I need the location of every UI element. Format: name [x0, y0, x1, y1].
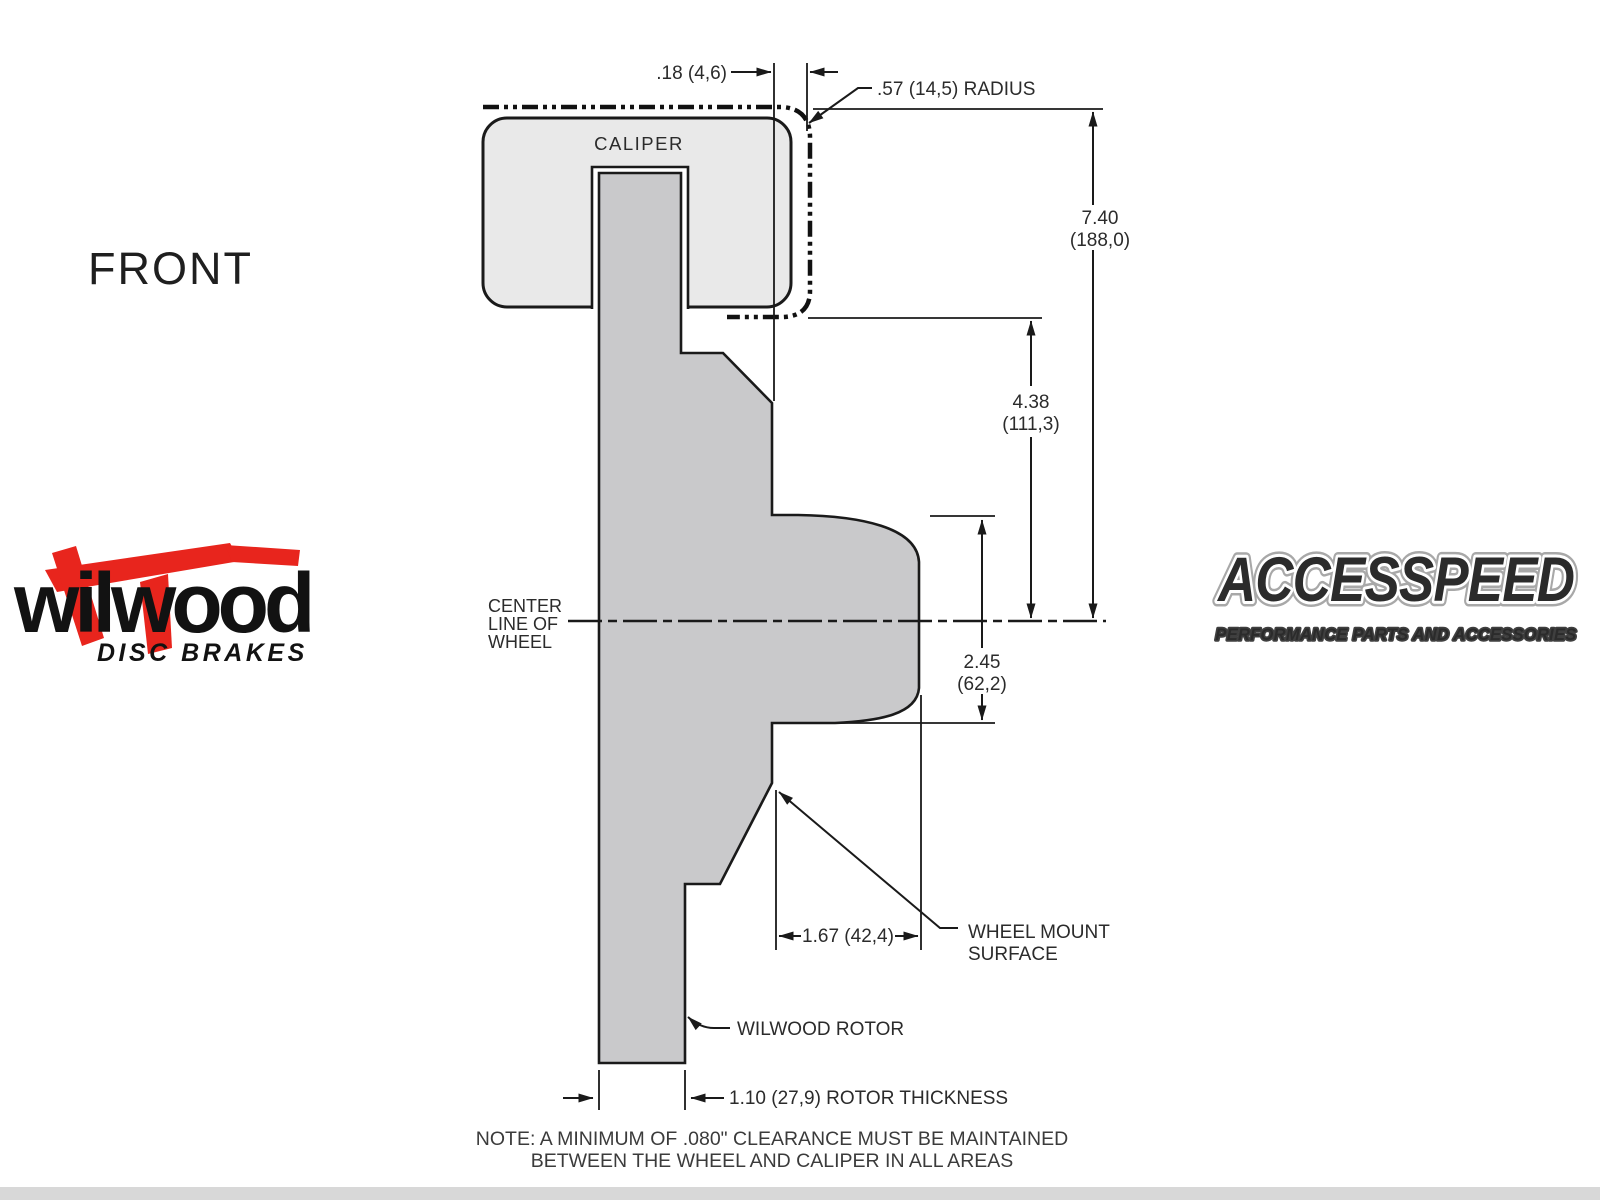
accesspeed-logo: ACCESSPEED ACCESSPEED ACCESSPEED PERFORM…: [1215, 545, 1576, 644]
wilwood-tagline: DISC BRAKES: [97, 639, 308, 667]
wilwood-logo: wilwood DISC BRAKES: [13, 543, 310, 667]
accesspeed-wordmark: ACCESSPEED: [1216, 545, 1574, 615]
note-line-2: BETWEEN THE WHEEL AND CALIPER IN ALL ARE…: [531, 1150, 1014, 1172]
brake-diagram-svg: FRONT CALIPER .18 (4,6) .57 (14,5) RADIU…: [0, 0, 1600, 1200]
rotor-leader: [688, 1017, 730, 1028]
center-line-label-3: WHEEL: [488, 632, 552, 652]
dim-text-caliper-to-center-mm: (111,3): [1002, 414, 1059, 435]
wheel-mount-leader: [779, 792, 958, 928]
wilwood-wordmark: wilwood: [13, 556, 310, 650]
accesspeed-tagline: PERFORMANCE PARTS AND ACCESSORIES: [1215, 625, 1576, 644]
footer-strip: [0, 1187, 1600, 1200]
center-line-label-2: LINE OF: [488, 614, 558, 634]
dim-text-hub-height-in: 2.45: [964, 652, 1001, 673]
rotor-label: WILWOOD ROTOR: [737, 1019, 904, 1040]
dim-text-caliper-clearance: .18 (4,6): [656, 63, 727, 84]
technical-drawing-page: FRONT CALIPER .18 (4,6) .57 (14,5) RADIU…: [0, 0, 1600, 1200]
dim-text-overall-height-in: 7.40: [1082, 208, 1119, 229]
note-line-1: NOTE: A MINIMUM OF .080" CLEARANCE MUST …: [476, 1128, 1068, 1150]
radius-leader: [809, 88, 872, 123]
center-line-label-1: CENTER: [488, 596, 562, 616]
dim-text-overall-height-mm: (188,0): [1070, 230, 1130, 251]
dim-text-mount-offset: 1.67 (42,4): [802, 926, 894, 947]
view-label: FRONT: [88, 243, 253, 294]
dim-text-hub-height-mm: (62,2): [957, 674, 1007, 695]
dim-text-corner-radius: .57 (14,5) RADIUS: [877, 79, 1035, 100]
caliper-label: CALIPER: [594, 133, 684, 154]
dim-text-rotor-thickness: 1.10 (27,9) ROTOR THICKNESS: [729, 1088, 1008, 1109]
dim-text-caliper-to-center-in: 4.38: [1013, 392, 1050, 413]
wheel-mount-label-1: WHEEL MOUNT: [968, 922, 1110, 943]
wheel-mount-label-2: SURFACE: [968, 944, 1058, 965]
